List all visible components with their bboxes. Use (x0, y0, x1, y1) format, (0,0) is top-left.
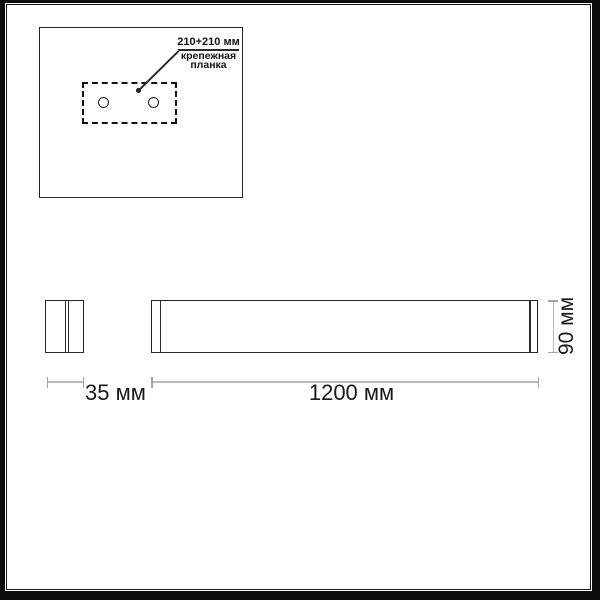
depth-dimension-line (47, 381, 84, 383)
diagram-canvas: 210+210 мм крепежная планка 35 мм 1200 м… (0, 0, 600, 600)
width-dimension-tick-right (538, 377, 540, 388)
width-dimension-label: 1200 мм (294, 382, 409, 404)
width-dimension-tick-left (151, 377, 153, 388)
side-view-seam-line (68, 301, 69, 352)
mounting-dimension-label: 210+210 мм (174, 36, 243, 49)
depth-dimension-tick-left (47, 377, 49, 388)
height-dimension-line (553, 301, 555, 353)
height-dimension-label: 90 мм (555, 296, 579, 356)
screw-hole-left (98, 97, 109, 108)
front-view-right-seam (529, 301, 530, 352)
side-view-outline (45, 300, 84, 353)
depth-dimension-label: 35 мм (85, 382, 141, 404)
mounting-inset-box: 210+210 мм крепежная планка (39, 27, 243, 198)
screw-hole-right (148, 97, 159, 108)
mounting-plate-outline (82, 82, 177, 124)
front-view-left-seam (160, 301, 161, 352)
mounting-part-label-line2: планка (178, 61, 239, 71)
mounting-part-label: крепежная планка (178, 52, 239, 71)
side-view-seam-line (65, 301, 66, 352)
front-view-outline (151, 300, 539, 353)
